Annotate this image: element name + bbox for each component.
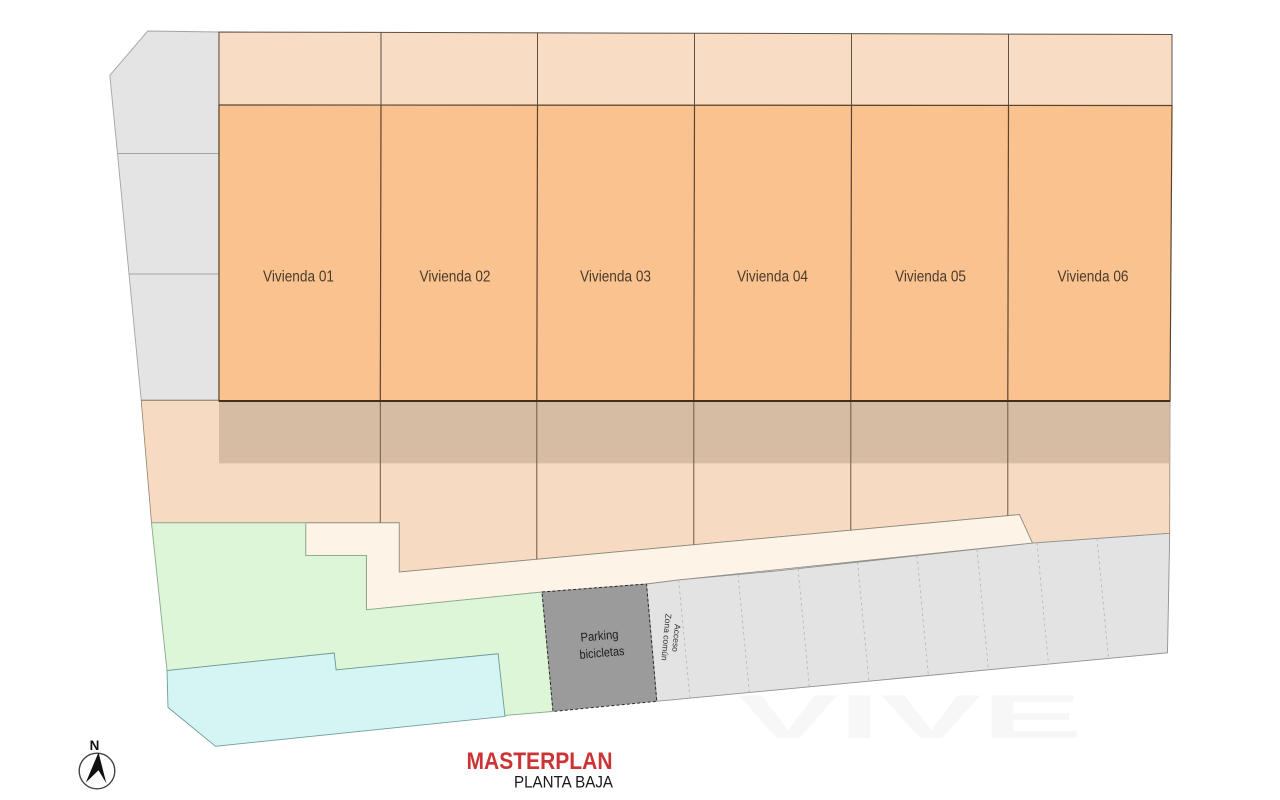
- svg-text:Vivienda 06: Vivienda 06: [1058, 269, 1129, 286]
- svg-text:Vivienda 04: Vivienda 04: [737, 269, 808, 286]
- svg-text:Vivienda 02: Vivienda 02: [420, 269, 491, 286]
- svg-text:N: N: [90, 738, 100, 753]
- svg-text:PLANTA BAJA: PLANTA BAJA: [514, 774, 613, 792]
- svg-text:Vivienda 01: Vivienda 01: [263, 269, 334, 286]
- svg-text:Vivienda 03: Vivienda 03: [580, 269, 651, 286]
- svg-text:Vivienda 05: Vivienda 05: [895, 269, 966, 286]
- svg-text:VIVE: VIVE: [738, 683, 1083, 752]
- svg-text:MASTERPLAN: MASTERPLAN: [467, 748, 613, 775]
